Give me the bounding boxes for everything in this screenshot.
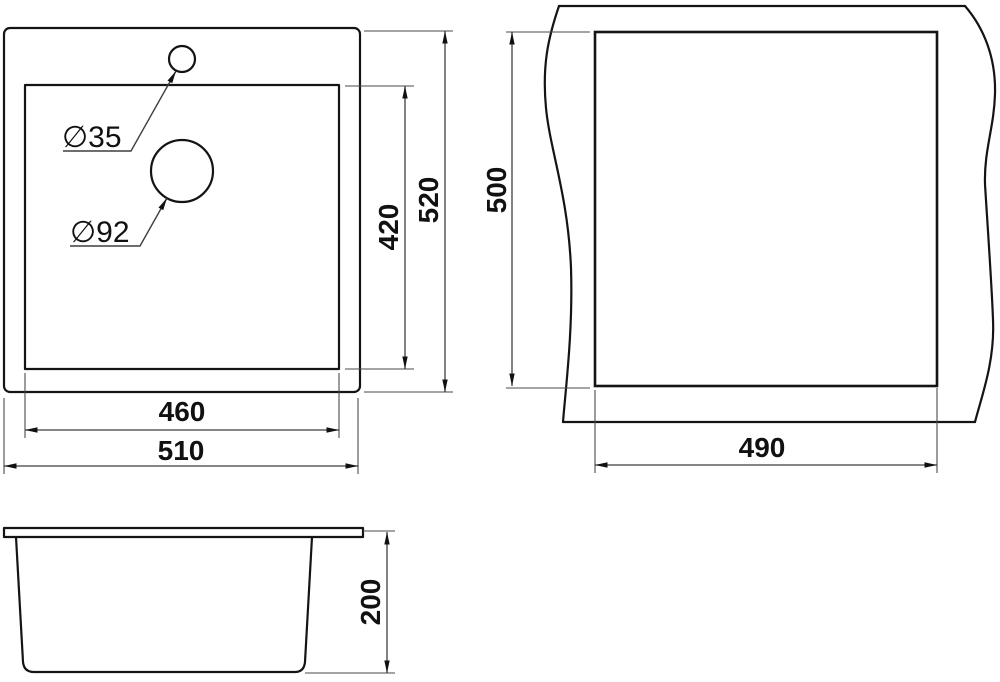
drain-hole-diameter-label: ∅92 <box>70 216 130 249</box>
dim-label-bowl-depth: 200 <box>355 579 386 626</box>
dimension-cutout-height: 500 <box>481 32 590 388</box>
sink-technical-drawing: ∅35 ∅92 420 520 460 <box>0 0 1000 682</box>
dim-label-inner-height: 420 <box>373 204 404 251</box>
sink-outer-rim-rect <box>4 28 360 392</box>
dimension-cutout-width: 490 <box>595 388 937 473</box>
sink-bowl-profile <box>16 537 312 672</box>
dimension-inner-height: 420 <box>345 86 414 369</box>
dim-label-cutout-width: 490 <box>739 432 786 463</box>
drawing-canvas: ∅35 ∅92 420 520 460 <box>0 0 1000 682</box>
countertop-break-line-right <box>965 6 995 422</box>
faucet-hole-circle <box>169 46 195 72</box>
dim-label-outer-height: 520 <box>413 177 444 224</box>
drain-hole-circle <box>151 140 213 202</box>
faucet-hole-diameter-label: ∅35 <box>62 121 122 154</box>
dim-label-cutout-height: 500 <box>481 167 512 214</box>
countertop-break-line-left <box>545 6 572 422</box>
cutout-rect <box>595 32 937 386</box>
dimension-inner-width: 460 <box>25 373 339 438</box>
cutout-view: 500 490 <box>481 6 995 473</box>
dimension-bowl-depth: 200 <box>305 531 395 673</box>
top-view: ∅35 ∅92 420 520 460 <box>4 28 453 474</box>
sink-flange-profile <box>4 528 363 537</box>
dim-label-outer-width: 510 <box>158 435 205 466</box>
side-view: 200 <box>4 528 395 673</box>
dim-label-inner-width: 460 <box>159 396 206 427</box>
